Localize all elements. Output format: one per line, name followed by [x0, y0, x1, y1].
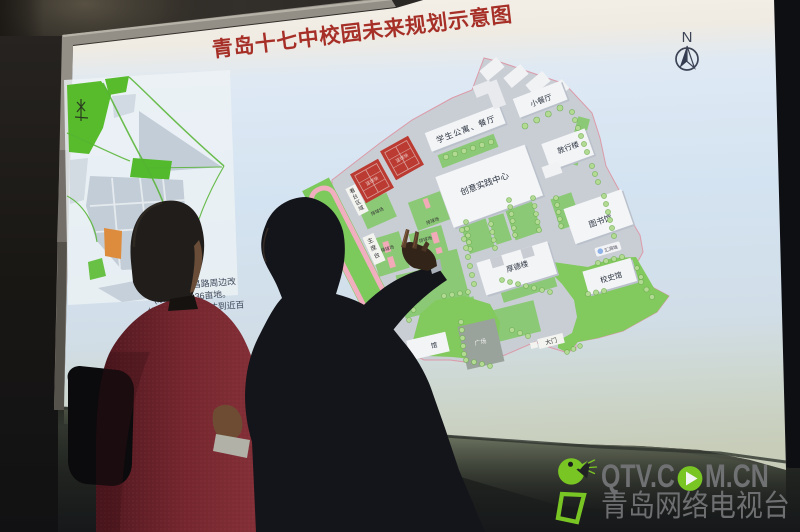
svg-text:N: N — [682, 29, 693, 46]
svg-text:青岛网络电视台: 青岛网络电视台 — [601, 490, 790, 524]
